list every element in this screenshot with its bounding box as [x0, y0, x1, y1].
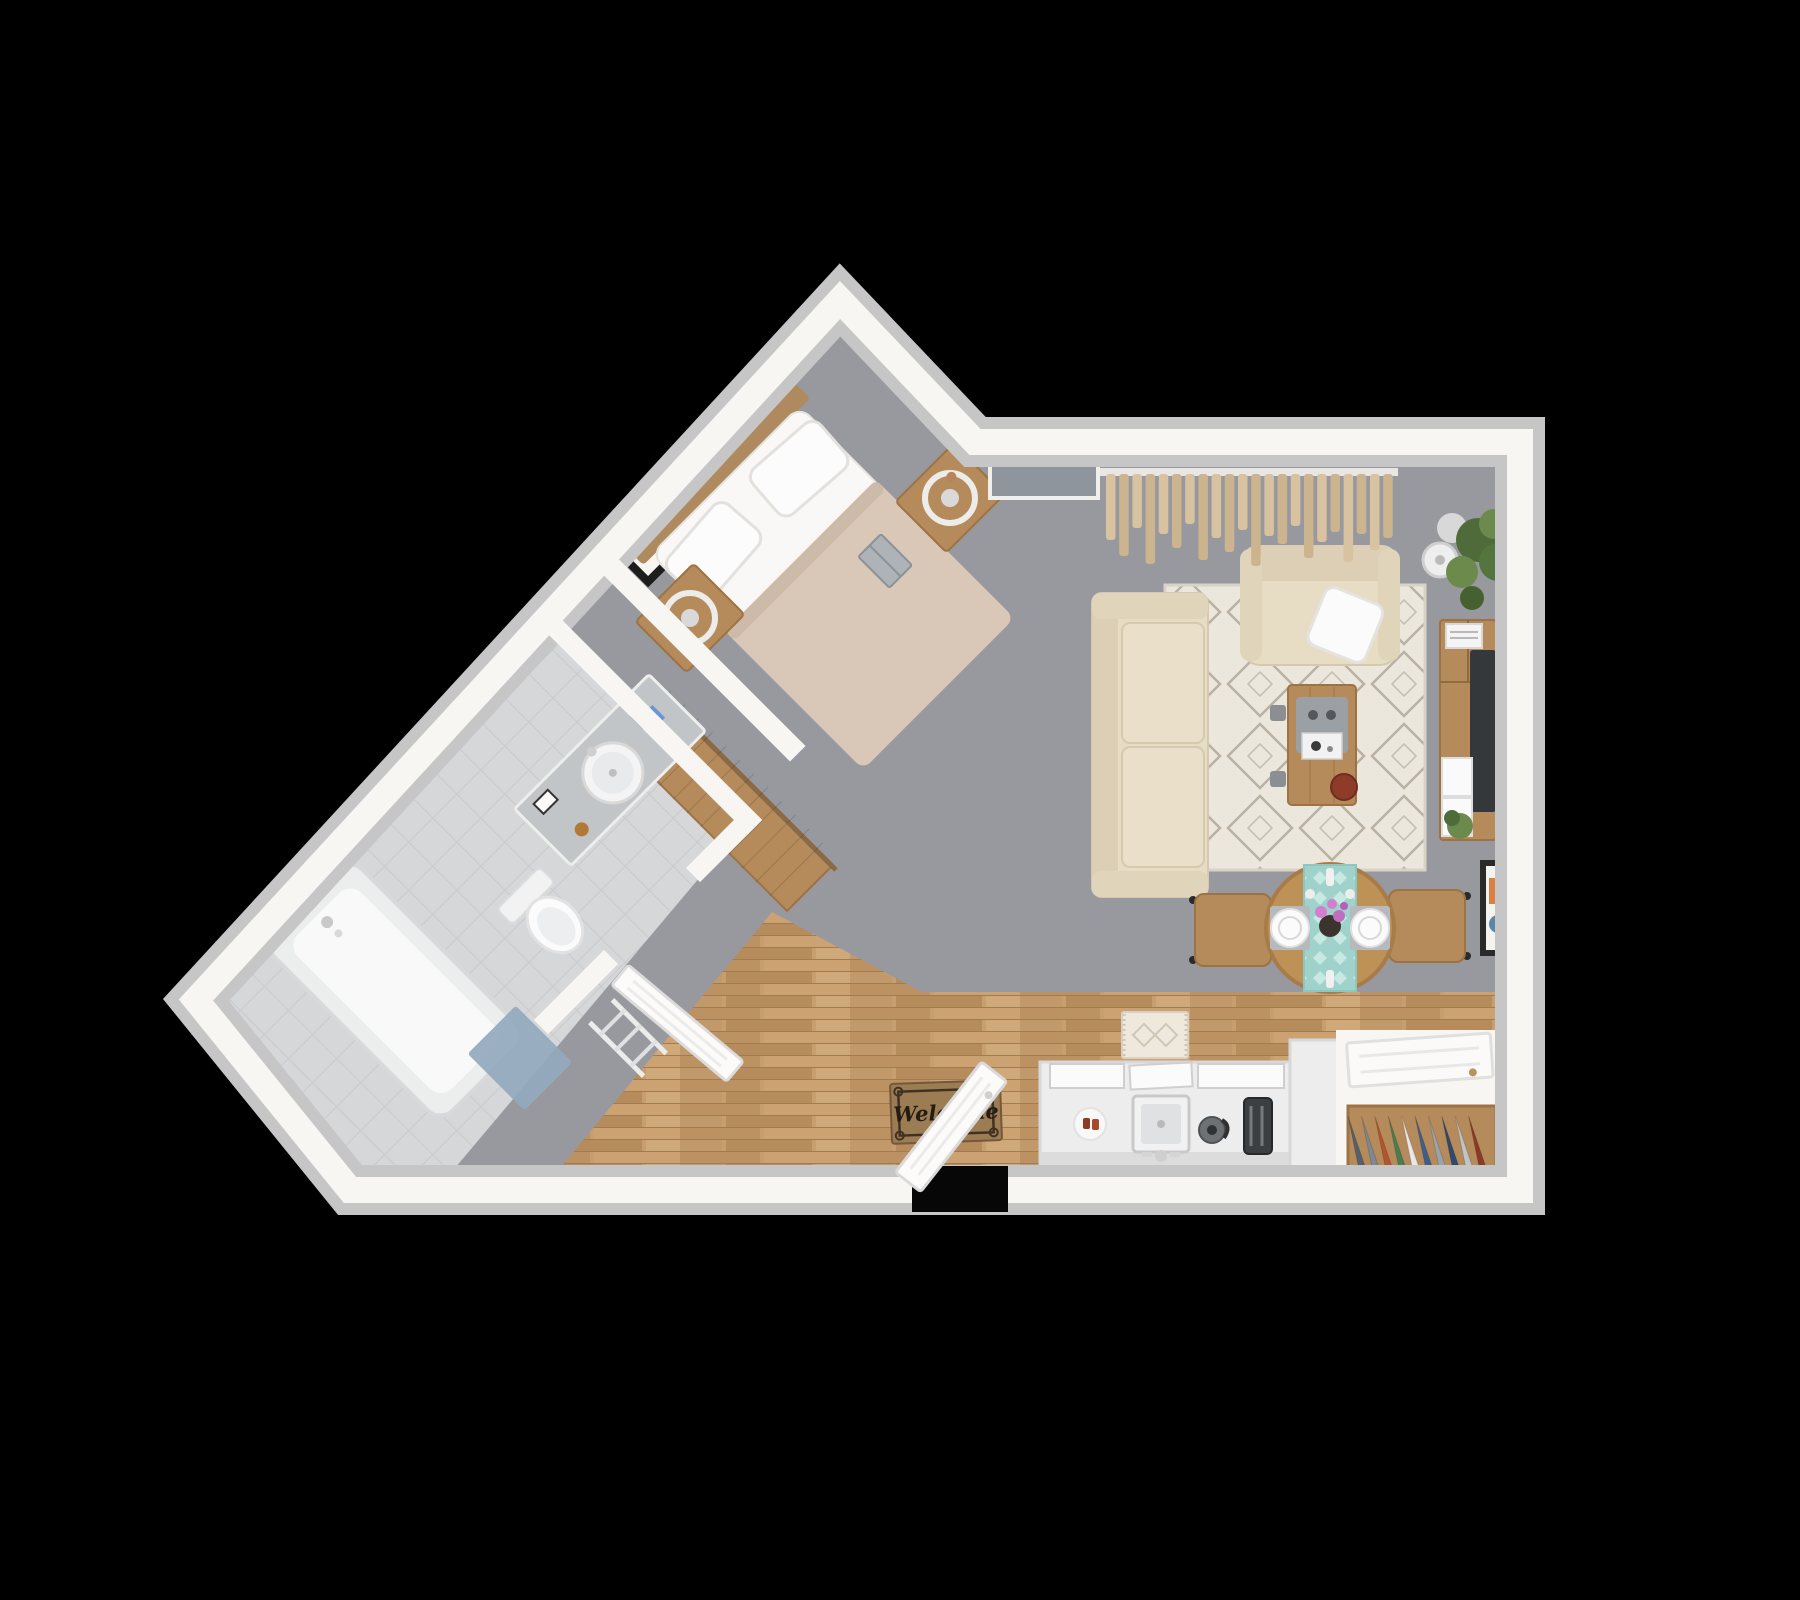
curtain-strip — [1238, 474, 1248, 530]
floorplan-svg: Welcome — [0, 0, 1800, 1600]
curtain-strip — [1132, 474, 1142, 528]
toaster — [1244, 1098, 1272, 1154]
dining-chair-left — [1189, 894, 1271, 966]
curtain-strip — [1225, 474, 1235, 552]
curtain-strip — [1278, 474, 1288, 544]
sink-faucet — [1155, 1150, 1167, 1162]
sliding-door — [1347, 1033, 1494, 1087]
round-red-tray — [1331, 774, 1357, 800]
curtain-strip — [1370, 474, 1380, 550]
dining-chair-right — [1389, 890, 1471, 962]
utensil-bottom — [1326, 970, 1334, 988]
plate-left — [1271, 909, 1309, 947]
flat-tv — [1470, 650, 1496, 812]
kitchen-sink — [1133, 1096, 1189, 1162]
console-drawer-1 — [1442, 758, 1472, 796]
kitchen-counter — [1040, 1062, 1290, 1170]
sofa-armrest-bottom — [1092, 871, 1208, 897]
curtain-strip — [1291, 474, 1301, 526]
curtain-strip — [1357, 474, 1367, 534]
runner-rug — [1122, 1012, 1188, 1058]
sofa-cushion-1 — [1122, 623, 1204, 743]
curtain-strip — [1106, 474, 1116, 540]
curtain-strip — [1172, 474, 1182, 548]
armchair — [1240, 545, 1400, 665]
tv-console — [1440, 620, 1496, 840]
curtain-strip — [1212, 474, 1222, 538]
curtain-strip — [1344, 474, 1354, 562]
sofa-cushion-2 — [1122, 747, 1204, 867]
curtain-strip — [1159, 474, 1169, 534]
cabinet-fronts — [1050, 1062, 1284, 1089]
curtain-strip — [1264, 474, 1274, 536]
curtain-strip — [1146, 474, 1156, 564]
return-counter — [1290, 1040, 1344, 1170]
curtain-strip — [1119, 474, 1129, 556]
curtain-strip — [1383, 474, 1393, 538]
curtain-strip — [1185, 474, 1195, 524]
sofa — [1092, 593, 1208, 897]
sofa-backrest — [1092, 593, 1118, 897]
curtain-strip — [1251, 474, 1261, 566]
curtain-rod — [1100, 468, 1398, 476]
curtain-strip — [1330, 474, 1340, 532]
sofa-armrest-top — [1092, 593, 1208, 619]
magazines — [1446, 624, 1482, 648]
utensil-top — [1326, 868, 1334, 886]
curtain-strip — [1304, 474, 1314, 558]
floorplan-stage: Welcome — [0, 0, 1800, 1600]
plate-right — [1351, 909, 1389, 947]
curtain-strip — [1317, 474, 1327, 542]
side-coaster-1 — [1270, 705, 1286, 721]
side-coaster-2 — [1270, 771, 1286, 787]
curtain-strip — [1198, 474, 1208, 560]
